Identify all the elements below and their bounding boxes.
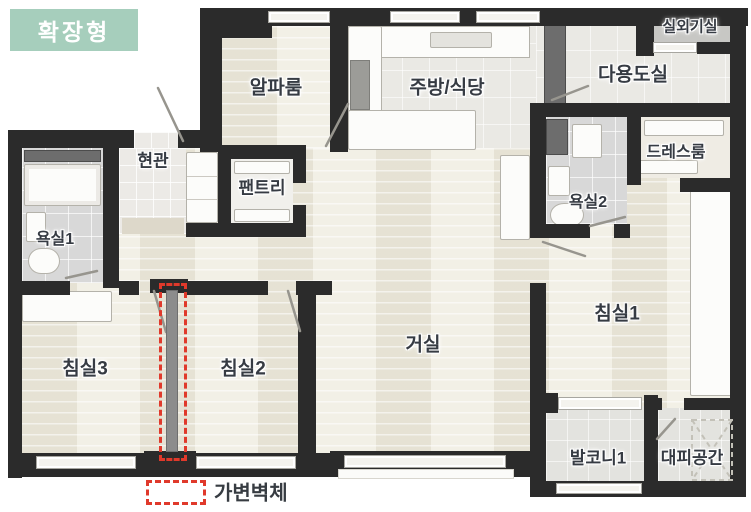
bedroom1-door-swing-line <box>543 242 585 256</box>
entrance-door-swing-line <box>158 88 183 141</box>
bathroom2-door-swing-line <box>590 217 625 226</box>
room-label-utility: 다용도실 <box>598 60 668 87</box>
evacuation-door-swing-line <box>657 419 675 439</box>
room-label-evacuation: 대피공간 <box>661 444 724 469</box>
room-label-bedroom2: 침실2 <box>220 354 266 381</box>
room-label-bathroom1: 욕실1 <box>36 225 74 249</box>
plan-type-badge-label: 확장형 <box>38 13 110 47</box>
room-label-kitchen: 주방/식당 <box>409 73 484 100</box>
legend-movable-wall-swatch <box>146 480 206 505</box>
floor-plan: 알파룸 주방/식당 실외기실 다용도실 드레스룸 욕실2 침실1 발코니1 대피… <box>0 0 751 512</box>
bathroom1-door-swing-line <box>66 271 97 278</box>
movable-wall-highlight <box>159 283 187 461</box>
plan-type-badge: 확장형 <box>10 9 138 51</box>
room-label-bedroom3: 침실3 <box>62 354 108 381</box>
room-label-balcony1: 발코니1 <box>570 444 626 469</box>
bedroom2-door-swing-line <box>288 291 300 331</box>
room-label-living-room: 거실 <box>406 330 441 357</box>
room-label-pantry: 팬트리 <box>239 174 286 199</box>
room-label-outdoor-unit: 실외기실 <box>662 16 717 37</box>
alpha-room-door-swing-line <box>326 104 348 146</box>
legend-movable-wall-label: 가변벽체 <box>214 477 288 506</box>
room-label-alpha-room: 알파룸 <box>250 73 302 100</box>
utility-door-swing-line <box>552 86 588 100</box>
room-label-dress-room: 드레스룸 <box>647 138 706 162</box>
room-label-bedroom1: 침실1 <box>594 299 640 326</box>
room-label-bathroom2: 욕실2 <box>569 188 607 212</box>
room-label-entrance: 현관 <box>137 147 168 172</box>
